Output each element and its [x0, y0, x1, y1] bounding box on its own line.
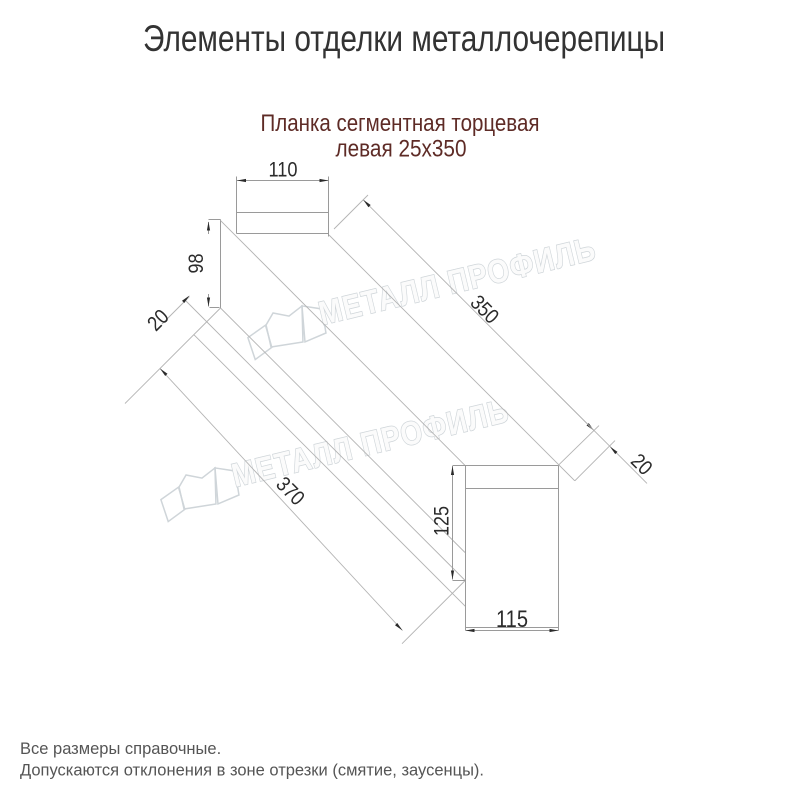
svg-text:Все размеры справочные.: Все размеры справочные. — [20, 740, 221, 758]
svg-text:98: 98 — [185, 254, 208, 274]
svg-text:110: 110 — [269, 159, 298, 182]
svg-text:350: 350 — [466, 291, 503, 328]
svg-text:125: 125 — [430, 506, 453, 536]
svg-text:МЕТАЛЛ ПРОФИЛЬ: МЕТАЛЛ ПРОФИЛЬ — [315, 230, 600, 332]
svg-text:МЕТАЛЛ ПРОФИЛЬ: МЕТАЛЛ ПРОФИЛЬ — [228, 392, 513, 494]
svg-text:левая 25х350: левая 25х350 — [336, 136, 467, 163]
svg-text:20: 20 — [143, 305, 173, 335]
svg-text:Планка сегментная торцевая: Планка сегментная торцевая — [261, 110, 540, 137]
svg-text:20: 20 — [626, 450, 656, 480]
svg-text:Элементы отделки металлочерепи: Элементы отделки металлочерепицы — [143, 18, 665, 59]
svg-text:Допускаются отклонения в зоне: Допускаются отклонения в зоне отрезки (с… — [20, 762, 484, 780]
svg-text:115: 115 — [496, 606, 528, 633]
